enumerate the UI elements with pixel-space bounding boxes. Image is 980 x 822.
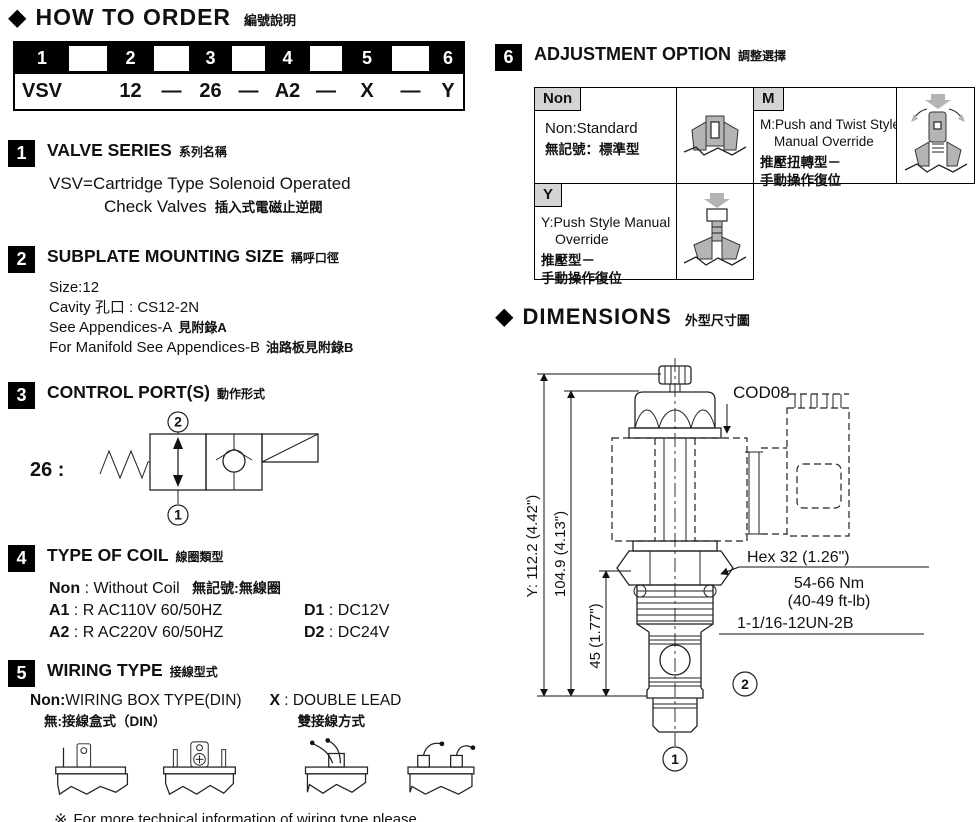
code-box-1: 1 xyxy=(15,43,69,74)
adjustment-image-cell-m xyxy=(896,87,975,184)
section-1-header: 1 VALVE SERIES系列名稱 xyxy=(8,140,486,167)
tag-y: Y xyxy=(534,183,562,207)
model-code-value-row: VSV 12 — 26 — A2 — X — Y xyxy=(15,74,463,109)
adjustment-cell-non: Non Non:Standard 無記號：標準型 xyxy=(534,87,677,184)
dim-label-lower-height: 45 (1.77") xyxy=(587,603,604,668)
dimension-drawing: Y: 112.2 (4.42") 104.9 (4.13") 45 (1.77"… xyxy=(509,336,967,784)
coil-option-row-2: A2 : R AC220V 60/50HZ D2 : DC24V xyxy=(49,622,486,644)
section-2-number: 2 xyxy=(8,246,35,273)
wiring-option-din: Non:WIRING BOX TYPE(DIN) 無:接線盒式（DIN） xyxy=(30,692,242,730)
hex-label: Hex 32 (1.26") xyxy=(747,549,850,566)
adjustment-cell-m: M M:Push and Twist Style Manual Override… xyxy=(753,87,897,184)
section-control-ports: 3 CONTROL PORT(S)動作形式 26 : xyxy=(8,382,486,529)
code-dash: — xyxy=(154,74,189,109)
m-line-2: Manual Override xyxy=(760,133,892,150)
mounting-line-size: Size:12 xyxy=(49,278,486,298)
dimensions-title: DIMENSIONS xyxy=(522,304,671,330)
section-1-number: 1 xyxy=(8,140,35,167)
section-2-header: 2 SUBPLATE MOUNTING SIZE稱呼口徑 xyxy=(8,246,486,273)
schematic-code-label: 26 : xyxy=(30,459,64,482)
section-6-title: ADJUSTMENT OPTION xyxy=(534,40,731,64)
section-5-title-zh: 接線型式 xyxy=(170,665,218,679)
code-gap xyxy=(69,46,107,71)
tag-m: M xyxy=(753,87,784,111)
code-dash: — xyxy=(232,74,265,109)
y-line-3: 推壓型－ xyxy=(541,252,672,270)
double-lead-drawing-2 xyxy=(396,738,484,800)
section-1-title: VALVE SERIES xyxy=(47,136,172,160)
m-line-3: 推壓扭轉型－ xyxy=(760,154,892,172)
dim-label-overall-height: Y: 112.2 (4.42") xyxy=(524,495,541,598)
code-gap xyxy=(310,46,342,71)
push-knob-drawing xyxy=(680,191,750,273)
diamond-icon: ◆ xyxy=(495,305,513,329)
code-box-3: 3 xyxy=(189,43,232,74)
mounting-line-cavity: Cavity 孔口 : CS12-2N xyxy=(49,298,486,318)
code-box-2: 2 xyxy=(107,43,154,74)
code-gap xyxy=(232,46,265,71)
standard-knob-drawing xyxy=(680,108,750,164)
wiring-footnote: ※ For more technical information of wiri… xyxy=(54,810,486,822)
port-1-label: 1 xyxy=(175,507,183,523)
double-lead-drawing-1 xyxy=(290,738,382,800)
dim-label-mid-height: 104.9 (4.13") xyxy=(552,511,569,597)
code-value-wiring: X xyxy=(342,74,392,109)
section-5-title: WIRING TYPE xyxy=(47,656,163,680)
m-line-1: M:Push and Twist Style xyxy=(760,116,892,133)
non-line-1: Non:Standard xyxy=(545,120,672,137)
section-6-header: 6 ADJUSTMENT OPTION調整選擇 xyxy=(495,44,980,71)
code-box-6: 6 xyxy=(429,43,467,74)
code-value-size: 12 xyxy=(107,74,154,109)
code-box-4: 4 xyxy=(265,43,310,74)
code-dash xyxy=(69,74,107,109)
section-5-number: 5 xyxy=(8,660,35,687)
code-gap xyxy=(392,46,429,71)
dimensions-title-zh: 外型尺寸圖 xyxy=(685,310,750,329)
page-title: HOW TO ORDER xyxy=(35,4,231,31)
hydraulic-schematic: 2 1 xyxy=(92,411,392,529)
code-value-series: VSV xyxy=(15,74,69,109)
code-gap xyxy=(154,46,189,71)
push-twist-knob-drawing xyxy=(901,92,971,180)
port-1-callout: 1 xyxy=(671,751,679,767)
y-line-2: Override xyxy=(541,231,672,248)
code-dash: — xyxy=(310,74,342,109)
footnote-line-1: For more technical information of wiring… xyxy=(73,810,417,822)
section-6-title-zh: 調整選擇 xyxy=(738,49,786,63)
thread-label: 1-1/16-12UN-2B xyxy=(737,615,854,632)
din-connector-front-drawing xyxy=(154,738,246,800)
din-connector-side-drawing xyxy=(48,738,140,800)
page-title-zh: 編號說明 xyxy=(244,10,296,29)
code-value-ports: 26 xyxy=(189,74,232,109)
coil-option-non: Non : Without Coil 無記號:無線圈 xyxy=(49,577,486,600)
code-dash: — xyxy=(392,74,429,109)
valve-series-line1: VSV=Cartridge Type Solenoid Operated xyxy=(49,172,486,195)
section-4-title: TYPE OF COIL xyxy=(47,541,169,565)
model-code-table: 1 2 3 4 5 6 VSV 12 — 26 — A2 — xyxy=(13,41,465,111)
torque-label: 54-66 Nm xyxy=(794,575,864,592)
section-3-number: 3 xyxy=(8,382,35,409)
code-value-adjust: Y xyxy=(429,74,467,109)
torque-label-ftlb: (40-49 ft-lb) xyxy=(788,593,871,610)
left-column: ◆ HOW TO ORDER 編號說明 1 2 3 4 5 6 VSV 12 xyxy=(8,4,486,822)
port-2-callout: 2 xyxy=(741,676,749,692)
section-5-header: 5 WIRING TYPE接線型式 xyxy=(8,660,486,687)
section-valve-series: 1 VALVE SERIES系列名稱 VSV=Cartridge Type So… xyxy=(8,140,486,219)
right-column: 6 ADJUSTMENT OPTION調整選擇 Non Non:Standard… xyxy=(495,44,980,789)
adjustment-option-table: Non Non:Standard 無記號：標準型 M M:Push xyxy=(534,87,975,280)
section-4-header: 4 TYPE OF COIL線圈類型 xyxy=(8,545,486,572)
diamond-icon: ◆ xyxy=(8,6,26,30)
section-type-of-coil: 4 TYPE OF COIL線圈類型 Non : Without Coil 無記… xyxy=(8,545,486,644)
cod08-label: COD08 xyxy=(733,383,790,402)
section-4-title-zh: 線圈類型 xyxy=(176,550,224,564)
y-line-1: Y:Push Style Manual xyxy=(541,214,672,231)
reference-mark: ※ xyxy=(54,810,67,822)
code-box-5: 5 xyxy=(342,43,392,74)
tag-non: Non xyxy=(534,87,581,111)
adjustment-image-cell-y xyxy=(676,183,754,280)
mounting-line-manifold: For Manifold See Appendices-B油路板見附錄B xyxy=(49,338,486,358)
wiring-option-double-lead: X : DOUBLE LEAD 雙接線方式 xyxy=(270,692,402,730)
section-6-number: 6 xyxy=(495,44,522,71)
section-2-title: SUBPLATE MOUNTING SIZE xyxy=(47,242,284,266)
model-code-number-row: 1 2 3 4 5 6 xyxy=(15,43,463,74)
m-line-4: 手動操作復位 xyxy=(760,172,892,190)
port-2-label: 2 xyxy=(175,414,183,430)
section-mounting-size: 2 SUBPLATE MOUNTING SIZE稱呼口徑 Size:12 Cav… xyxy=(8,246,486,358)
datasheet-page: ◆ HOW TO ORDER 編號說明 1 2 3 4 5 6 VSV 12 xyxy=(0,0,980,822)
code-value-coil: A2 xyxy=(265,74,310,109)
y-line-4: 手動操作復位 xyxy=(541,270,672,288)
section-2-title-zh: 稱呼口徑 xyxy=(291,251,339,265)
valve-series-line2: Check Valves插入式電磁止逆閥 xyxy=(49,195,486,219)
mounting-line-appendices-a: See Appendices-A見附錄A xyxy=(49,318,486,338)
adjustment-cell-y: Y Y:Push Style Manual Override 推壓型－ 手動操作… xyxy=(534,183,677,280)
coil-option-row-1: A1 : R AC110V 60/50HZ D1 : DC12V xyxy=(49,600,486,622)
non-line-2: 無記號：標準型 xyxy=(545,141,672,159)
adjustment-image-cell-standard xyxy=(676,87,754,184)
section-1-title-zh: 系列名稱 xyxy=(179,145,227,159)
dimensions-header: ◆ DIMENSIONS 外型尺寸圖 xyxy=(495,304,980,330)
section-3-title: CONTROL PORT(S) xyxy=(47,378,210,402)
section-3-header: 3 CONTROL PORT(S)動作形式 xyxy=(8,382,486,409)
how-to-order-header: ◆ HOW TO ORDER 編號說明 xyxy=(8,4,486,31)
section-wiring-type: 5 WIRING TYPE接線型式 Non:WIRING BOX TYPE(DI… xyxy=(8,660,486,822)
section-4-number: 4 xyxy=(8,545,35,572)
section-3-title-zh: 動作形式 xyxy=(217,387,265,401)
